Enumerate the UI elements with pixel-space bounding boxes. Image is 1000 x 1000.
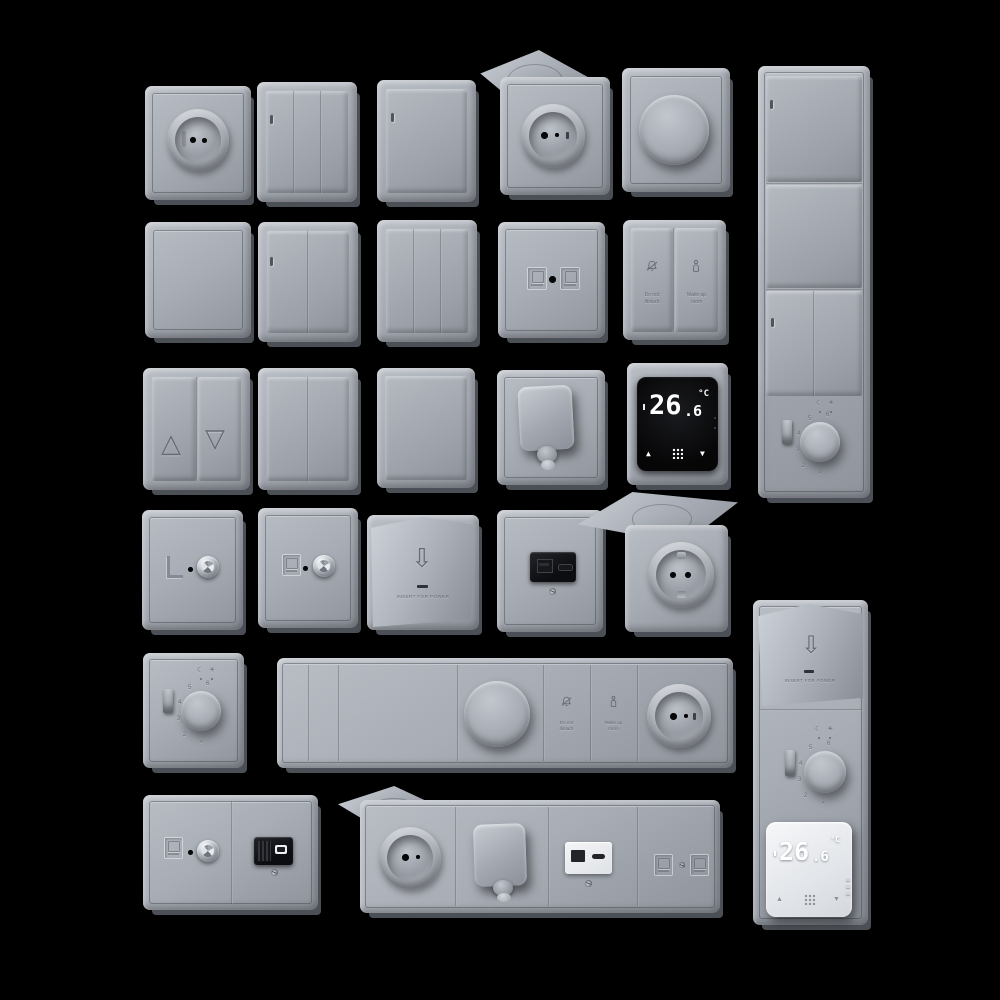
rocker-face[interactable]: [266, 91, 348, 193]
blind-up-icon: △: [161, 430, 181, 456]
dnd-label-line1: Do not: [560, 720, 574, 725]
coax-connector[interactable]: [197, 840, 219, 862]
usb-a-port[interactable]: [571, 850, 585, 862]
tall-multi-panel: ☾ ☀ 6 5 4 3 2 *: [758, 66, 870, 498]
data-jack-icon: [690, 854, 709, 876]
bell-crossed-icon: [644, 258, 660, 274]
indicator-led: [270, 115, 273, 124]
dnd-label-line2: disturb: [560, 726, 574, 731]
day-icon: ☀: [209, 667, 215, 674]
aux-hole: [188, 567, 193, 572]
dial-number: 6: [827, 741, 830, 747]
dial-thermostat-module: ☾ ☀ 6 5 4 3 2 *: [145, 661, 241, 761]
blind-switch: △ ▽: [143, 368, 250, 490]
socket-with-lid: [500, 77, 610, 195]
card-label-text: INSERT FOR POWER: [785, 678, 836, 683]
pin-hole-left: [402, 854, 409, 861]
dnd-label: Do not disturb: [631, 292, 673, 306]
temperature-dial[interactable]: [804, 751, 846, 793]
card-led-slot: [804, 670, 814, 673]
mur-label-line1: Make up: [687, 292, 706, 298]
indicator-led: [771, 318, 774, 327]
fixing-screw: [679, 862, 685, 868]
pin-hole-right: [202, 138, 207, 143]
vertical-combo-panel: ⇩ INSERT FOR POWER ☾ ☀ 6 5 4 3 2 * °C 26…: [753, 600, 868, 925]
dnd-button[interactable]: [631, 228, 673, 332]
rocker-divider: [320, 91, 322, 193]
render-scene: ☾ ☀ 6 5 4 3 2 *: [0, 0, 1000, 1000]
card-arrow-icon: ⇩: [801, 634, 821, 658]
temp-up-button[interactable]: ▲: [646, 450, 651, 458]
mur-label-line1: Make up: [605, 720, 623, 725]
hdmi-port-inner: [277, 847, 285, 852]
temperature-frac: .6: [684, 404, 702, 419]
usb-c-port[interactable]: [592, 854, 605, 859]
aux-hole: [303, 566, 308, 571]
temperature-unit: °C: [698, 390, 709, 399]
rocker-face-large[interactable]: [766, 185, 862, 288]
module-divider: [759, 709, 862, 711]
data-jack-icon: [164, 837, 183, 859]
coax-connector[interactable]: [313, 555, 335, 577]
status-mark: [774, 851, 776, 856]
day-icon: ☀: [827, 726, 833, 733]
plate-groove: [153, 230, 243, 330]
schuko-socket-with-lid: [625, 525, 728, 632]
module-divider: [637, 807, 639, 906]
data-jack-icon: [282, 554, 301, 576]
socket-well[interactable]: [529, 112, 577, 160]
rocker-divider: [293, 91, 295, 193]
day-icon: ☀: [828, 400, 834, 407]
module-divider: [231, 801, 233, 904]
dial-number: 6: [826, 412, 829, 418]
digital-thermostat-white: °C 26 .6 ▲ ▼: [766, 822, 852, 917]
module-divider: [590, 665, 592, 761]
mode-dot: [830, 411, 832, 413]
menu-grid-button[interactable]: [804, 894, 815, 905]
mur-label-line2: room: [691, 299, 702, 305]
night-icon: ☾: [197, 667, 203, 674]
temp-up-button[interactable]: ▲: [776, 896, 783, 903]
socket-single: [145, 86, 251, 200]
frost-icon: *: [822, 801, 825, 808]
status-mark: [643, 404, 645, 410]
dial-number: 5: [808, 416, 811, 422]
mur-button[interactable]: [675, 228, 718, 332]
pin-hole-left: [541, 132, 548, 139]
temperature-dial[interactable]: [800, 422, 840, 462]
media-outlet: [498, 222, 605, 338]
usb-a-port[interactable]: [537, 559, 553, 573]
housekeeping-person-icon: [688, 258, 704, 274]
blind-down-icon: ▽: [205, 425, 225, 451]
dnd-label-line1: Do not: [645, 292, 660, 298]
switch-3gang: [257, 82, 357, 202]
dial-number: 4: [178, 700, 181, 706]
dimmer-knob[interactable]: [639, 95, 709, 165]
temperature-dial[interactable]: [181, 691, 221, 731]
mode-toggle-switch[interactable]: [782, 420, 792, 444]
dial-number: 2: [802, 463, 805, 469]
dial-number: 4: [799, 761, 802, 767]
vent-grille: [258, 841, 271, 861]
fixing-screw: [549, 588, 556, 595]
earth-slot: [693, 713, 696, 720]
temperature-unit: °C: [830, 836, 840, 844]
mode-dot: [829, 737, 831, 739]
mode-dot: [818, 737, 820, 739]
temperature-frac: .6: [812, 850, 829, 864]
pin-hole-left: [190, 137, 196, 143]
rocker-divider: [413, 229, 415, 333]
digital-thermostat-black: °C 26 .6 ▲ ▼: [627, 363, 728, 485]
indicator-led: [391, 113, 394, 122]
data-jack-icon: [560, 267, 580, 290]
mode-toggle-switch[interactable]: [785, 750, 795, 776]
card-label-text: INSERT FOR POWER: [397, 594, 450, 599]
usb-outlet-black: [497, 510, 603, 632]
card-label: INSERT FOR POWER: [377, 594, 469, 600]
rocker-divider: [196, 377, 198, 481]
dial-number: 4: [797, 431, 800, 437]
dial-thermostat-module: ☾ ☀ 6 5 4 3 2 *: [759, 712, 862, 817]
horizontal-combo-panel: Do not disturb Make up room: [277, 658, 733, 768]
rocker-face[interactable]: [385, 376, 467, 480]
cable-cover: [473, 823, 527, 887]
fixing-screw: [585, 880, 592, 887]
menu-grid-button[interactable]: [672, 448, 683, 459]
rotary-dimmer: [622, 68, 730, 192]
usb-c-port[interactable]: [558, 564, 573, 571]
dial-thermostat-module: ☾ ☀ 6 5 4 3 2 *: [766, 398, 862, 490]
rocker-face[interactable]: [766, 76, 862, 182]
mode-dot: [200, 678, 202, 680]
aux-hole: [188, 850, 193, 855]
side-button[interactable]: [846, 885, 850, 888]
module-divider: [457, 665, 459, 761]
tv-sat-socket-a: [142, 510, 243, 630]
dial-number: 2: [183, 732, 186, 738]
side-button[interactable]: [846, 892, 850, 895]
card-arrow-icon: ⇩: [411, 545, 433, 571]
cable-outlet: [497, 370, 605, 485]
dial-number: 3: [798, 777, 801, 783]
dial-number: 5: [188, 685, 191, 691]
temperature-main: 26: [779, 839, 809, 864]
pin-hole-right: [684, 714, 688, 718]
earth-slot: [566, 132, 569, 139]
cable-cover: [517, 385, 574, 452]
socket-shutter: [182, 131, 186, 147]
indicator-led: [770, 100, 773, 109]
module-divider: [543, 665, 545, 761]
dial-number: 3: [796, 447, 799, 453]
tv-hdmi-combo-panel: [143, 795, 318, 910]
usb-module-white: [565, 842, 612, 874]
night-icon: ☾: [816, 400, 822, 407]
usb-module: [530, 552, 576, 582]
blank-plate: [145, 222, 251, 338]
horizontal-combo-panel-2: [360, 800, 720, 913]
button-divider: [673, 228, 675, 332]
dimmer-knob[interactable]: [464, 681, 530, 747]
data-jack-icon: [527, 267, 547, 290]
pin-hole-right: [685, 572, 691, 578]
cable-gland-tip: [497, 893, 511, 902]
frost-icon: *: [819, 471, 822, 478]
switch-1gang: [377, 80, 476, 202]
usb-a-tongue: [539, 563, 549, 566]
dnd-label-line2: disturb: [644, 299, 659, 305]
dial-thermostat: ☾ ☀ 6 5 4 3 2 *: [143, 653, 244, 768]
switch-2gang: [258, 222, 358, 342]
side-button-dot: [714, 417, 716, 419]
earth-clip-bottom: [677, 591, 686, 598]
dnd-label: Do not disturb: [543, 720, 590, 732]
mode-toggle-switch[interactable]: [163, 689, 173, 713]
bell-crossed-icon: [559, 694, 574, 709]
indicator-led: [270, 257, 273, 266]
mur-label: Make up room: [675, 292, 718, 306]
dial-number: 2: [804, 793, 807, 799]
pin-hole-left: [670, 713, 677, 720]
dial-number: 6: [206, 681, 209, 687]
dial-number: 5: [809, 745, 812, 751]
thermostat-screen: °C 26 .6 ▲ ▼: [637, 377, 718, 471]
socket-well[interactable]: [387, 835, 433, 881]
fixing-screw: [271, 869, 278, 876]
tv-icon: [167, 556, 183, 578]
data-jack-icon: [654, 854, 673, 876]
hotel-service-panel: Do not disturb Make up room: [623, 220, 726, 340]
mode-dot: [819, 411, 821, 413]
module-divider: [338, 665, 340, 761]
cable-gland-tip: [541, 460, 555, 470]
switch-1gang-large: [377, 368, 475, 488]
frost-icon: *: [200, 740, 203, 747]
side-button-dot: [714, 427, 716, 429]
plate-groove: [265, 515, 351, 621]
pin-hole-left: [670, 572, 676, 578]
rocker-face[interactable]: [386, 89, 467, 193]
module-divider: [548, 807, 550, 906]
hdmi-module: [254, 837, 293, 865]
rocker-face[interactable]: [386, 229, 468, 333]
card-label: INSERT FOR POWER: [761, 678, 859, 684]
switch-3gang-b: [377, 220, 477, 342]
mode-dot: [211, 678, 213, 680]
night-icon: ☾: [815, 726, 821, 733]
dial-number: 3: [177, 716, 180, 722]
temperature-main: 26: [649, 392, 682, 419]
center-hole: [549, 276, 556, 283]
switch-2gang-b: [258, 368, 358, 490]
earth-clip-top: [677, 552, 686, 559]
pin-hole-right: [555, 133, 559, 137]
tv-sat-socket-b: [258, 508, 358, 628]
housekeeping-person-icon: [606, 694, 621, 709]
coax-connector[interactable]: [197, 556, 219, 578]
temp-down-button[interactable]: ▼: [700, 450, 705, 458]
rocker-divider: [813, 291, 815, 396]
module-divider: [637, 665, 639, 761]
card-led-slot: [417, 585, 428, 588]
rocker-divider: [440, 229, 442, 333]
module-divider: [308, 665, 310, 761]
module-divider: [455, 807, 457, 906]
mur-label: Make up room: [590, 720, 637, 732]
temp-down-button[interactable]: ▼: [833, 896, 840, 903]
pin-hole-right: [416, 855, 420, 859]
rocker-divider: [307, 231, 309, 333]
side-button[interactable]: [846, 878, 850, 881]
mur-label-line2: room: [608, 726, 618, 731]
rocker-divider: [307, 377, 309, 481]
key-card-switch: ⇩ INSERT FOR POWER: [367, 515, 479, 630]
